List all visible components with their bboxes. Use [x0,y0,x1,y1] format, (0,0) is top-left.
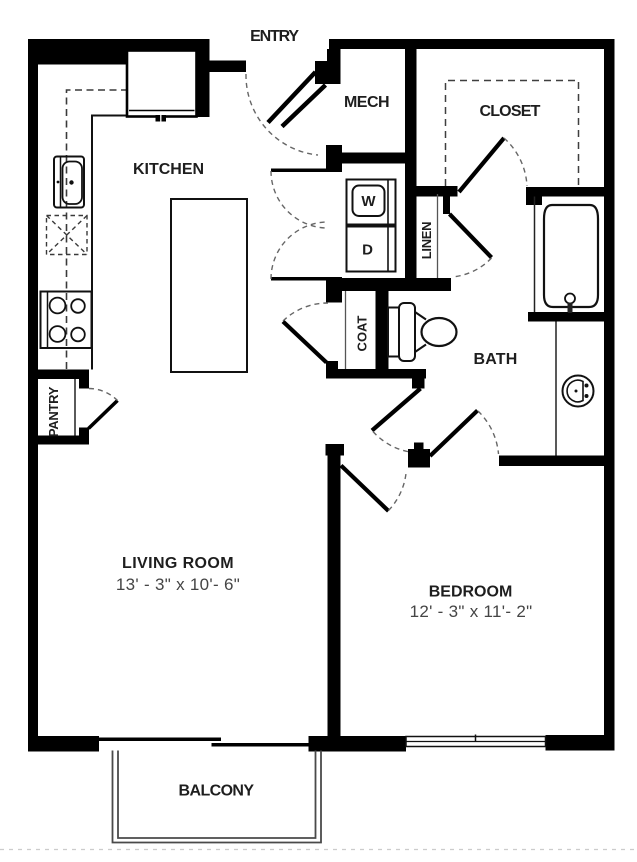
svg-text:COAT: COAT [355,316,370,352]
svg-text:ENTRY: ENTRY [250,28,299,45]
svg-text:CLOSET: CLOSET [479,103,540,120]
svg-text:LIVING ROOM: LIVING ROOM [122,555,234,572]
svg-text:12' - 3" x 11'- 2": 12' - 3" x 11'- 2" [410,602,533,621]
svg-text:13' - 3" x 10'- 6": 13' - 3" x 10'- 6" [116,575,240,594]
svg-text:KITCHEN: KITCHEN [133,161,204,178]
svg-text:LINEN: LINEN [419,222,434,260]
svg-text:W: W [361,193,376,210]
svg-text:PANTRY: PANTRY [46,386,61,437]
svg-text:BALCONY: BALCONY [179,783,255,800]
svg-text:D: D [362,242,373,259]
svg-text:BATH: BATH [473,351,517,368]
svg-text:BEDROOM: BEDROOM [429,584,513,601]
svg-text:MECH: MECH [344,94,389,111]
